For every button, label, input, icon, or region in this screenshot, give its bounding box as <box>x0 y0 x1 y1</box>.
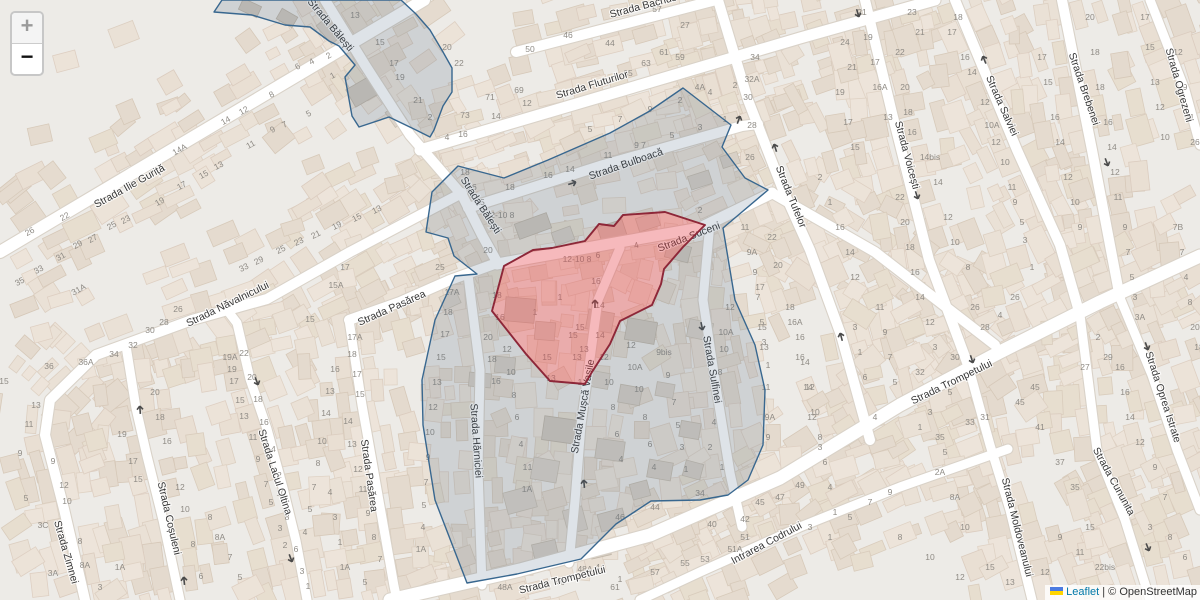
svg-text:9A: 9A <box>747 247 758 257</box>
svg-text:36: 36 <box>44 361 54 371</box>
svg-text:16A: 16A <box>787 317 802 327</box>
svg-text:7: 7 <box>888 352 893 362</box>
svg-text:20: 20 <box>1190 322 1200 332</box>
svg-text:9: 9 <box>1013 197 1018 207</box>
svg-text:15: 15 <box>1145 42 1155 52</box>
svg-text:11: 11 <box>25 419 34 429</box>
svg-text:20: 20 <box>900 217 910 227</box>
svg-text:61: 61 <box>659 47 669 57</box>
svg-text:15: 15 <box>305 314 315 324</box>
svg-text:8A: 8A <box>950 492 961 502</box>
svg-text:8: 8 <box>316 458 321 468</box>
svg-text:34: 34 <box>750 52 760 62</box>
svg-text:4: 4 <box>828 482 833 492</box>
svg-text:3: 3 <box>1133 292 1138 302</box>
svg-text:12: 12 <box>1110 167 1120 177</box>
svg-text:1: 1 <box>858 347 863 357</box>
svg-text:7: 7 <box>228 552 233 562</box>
svg-text:30: 30 <box>743 92 753 102</box>
svg-text:1: 1 <box>1030 262 1035 272</box>
svg-text:7: 7 <box>756 292 761 302</box>
svg-text:16: 16 <box>1120 387 1130 397</box>
svg-text:1: 1 <box>828 532 833 542</box>
svg-text:18: 18 <box>155 412 165 422</box>
svg-text:27: 27 <box>680 20 690 30</box>
svg-text:14: 14 <box>933 177 943 187</box>
svg-text:10: 10 <box>925 552 935 562</box>
svg-text:11: 11 <box>741 222 750 232</box>
svg-text:15A: 15A <box>328 280 343 290</box>
svg-text:19A: 19A <box>222 352 237 362</box>
svg-text:14: 14 <box>800 357 810 367</box>
svg-text:4: 4 <box>445 132 450 142</box>
svg-text:7: 7 <box>312 482 317 492</box>
svg-text:4: 4 <box>303 527 308 537</box>
svg-text:14: 14 <box>1125 412 1135 422</box>
svg-text:13: 13 <box>325 386 335 396</box>
svg-text:50: 50 <box>525 44 535 54</box>
svg-text:12: 12 <box>980 97 990 107</box>
svg-text:18: 18 <box>903 107 913 117</box>
svg-text:22: 22 <box>239 348 249 358</box>
svg-text:15: 15 <box>1085 522 1095 532</box>
svg-text:8A: 8A <box>80 560 91 570</box>
svg-text:5: 5 <box>1020 217 1025 227</box>
svg-text:24: 24 <box>840 37 850 47</box>
svg-text:5: 5 <box>760 317 765 327</box>
svg-text:33: 33 <box>965 417 975 427</box>
svg-text:45: 45 <box>1030 382 1040 392</box>
svg-text:3: 3 <box>933 342 938 352</box>
svg-text:5: 5 <box>1130 272 1135 282</box>
svg-text:13: 13 <box>347 439 357 449</box>
svg-text:17: 17 <box>947 27 957 37</box>
svg-text:18: 18 <box>1095 82 1105 92</box>
svg-text:12: 12 <box>955 572 965 582</box>
svg-text:21: 21 <box>847 62 857 72</box>
svg-text:12: 12 <box>175 482 185 492</box>
svg-text:28: 28 <box>980 322 990 332</box>
svg-text:15: 15 <box>985 562 995 572</box>
svg-text:29: 29 <box>1103 352 1113 362</box>
svg-text:12: 12 <box>991 137 1001 147</box>
svg-text:8: 8 <box>1168 532 1173 542</box>
svg-text:15: 15 <box>355 389 365 399</box>
svg-text:14bis: 14bis <box>920 152 940 162</box>
svg-text:16: 16 <box>330 364 340 374</box>
svg-text:1: 1 <box>828 197 833 207</box>
svg-text:28: 28 <box>159 317 169 327</box>
svg-text:55: 55 <box>680 558 690 568</box>
svg-text:8: 8 <box>966 262 971 272</box>
svg-text:32: 32 <box>915 367 925 377</box>
svg-text:16: 16 <box>1103 117 1113 127</box>
svg-text:30: 30 <box>145 325 155 335</box>
svg-text:7B: 7B <box>1173 222 1184 232</box>
svg-text:21: 21 <box>915 27 925 37</box>
svg-text:3C: 3C <box>38 520 49 530</box>
svg-text:9: 9 <box>1153 462 1158 472</box>
svg-text:8: 8 <box>1188 297 1193 307</box>
svg-text:14: 14 <box>915 292 925 302</box>
svg-text:17: 17 <box>1037 52 1047 62</box>
svg-text:10: 10 <box>1000 157 1010 167</box>
svg-text:26: 26 <box>173 304 183 314</box>
svg-text:20: 20 <box>1085 12 1095 22</box>
svg-text:17: 17 <box>755 282 765 292</box>
svg-text:6: 6 <box>1183 552 1188 562</box>
svg-text:15: 15 <box>133 474 143 484</box>
svg-text:59: 59 <box>675 52 685 62</box>
svg-text:2: 2 <box>733 80 738 90</box>
svg-text:9: 9 <box>51 456 56 466</box>
svg-text:2: 2 <box>818 172 823 182</box>
svg-text:13: 13 <box>883 112 893 122</box>
svg-text:10: 10 <box>1070 197 1080 207</box>
svg-text:18: 18 <box>253 394 263 404</box>
svg-text:7: 7 <box>1180 247 1185 257</box>
svg-text:16: 16 <box>835 222 845 232</box>
svg-text:73: 73 <box>460 110 470 120</box>
svg-text:18: 18 <box>785 302 795 312</box>
svg-text:37: 37 <box>1055 457 1065 467</box>
svg-text:22: 22 <box>454 58 464 68</box>
svg-text:31: 31 <box>980 412 990 422</box>
svg-text:26: 26 <box>1010 292 1020 302</box>
svg-text:6: 6 <box>199 571 204 581</box>
svg-text:17: 17 <box>870 57 880 67</box>
svg-text:10: 10 <box>810 407 820 417</box>
svg-text:4: 4 <box>1184 272 1189 282</box>
svg-text:7: 7 <box>868 497 873 507</box>
svg-text:3: 3 <box>808 522 813 532</box>
svg-text:17: 17 <box>128 456 138 466</box>
svg-text:7: 7 <box>618 114 623 124</box>
svg-text:10: 10 <box>317 436 327 446</box>
svg-text:2: 2 <box>283 540 288 550</box>
svg-text:18: 18 <box>905 242 915 252</box>
svg-text:3: 3 <box>853 322 858 332</box>
svg-text:11: 11 <box>876 302 885 312</box>
svg-text:5: 5 <box>943 447 948 457</box>
svg-text:14: 14 <box>967 67 977 77</box>
svg-text:12: 12 <box>59 480 69 490</box>
svg-text:8A: 8A <box>215 532 226 542</box>
svg-text:14: 14 <box>321 408 331 418</box>
svg-text:5: 5 <box>363 577 368 587</box>
svg-text:9: 9 <box>883 327 888 337</box>
svg-text:15: 15 <box>0 376 9 386</box>
svg-text:35: 35 <box>935 432 945 442</box>
svg-text:1: 1 <box>918 422 923 432</box>
svg-text:17: 17 <box>340 262 350 272</box>
svg-text:42: 42 <box>740 514 750 524</box>
svg-text:12: 12 <box>943 212 953 222</box>
svg-text:18: 18 <box>1090 47 1100 57</box>
svg-text:57: 57 <box>650 567 660 577</box>
svg-text:16: 16 <box>458 129 468 139</box>
svg-text:1: 1 <box>766 360 771 370</box>
svg-text:6: 6 <box>294 544 299 554</box>
svg-text:18: 18 <box>1194 342 1200 352</box>
svg-text:22: 22 <box>895 47 905 57</box>
svg-text:19: 19 <box>863 32 873 42</box>
svg-text:7: 7 <box>424 477 429 487</box>
svg-text:9: 9 <box>18 448 23 458</box>
svg-text:12: 12 <box>522 98 532 108</box>
svg-text:3: 3 <box>818 442 823 452</box>
svg-text:9: 9 <box>888 487 893 497</box>
svg-text:17: 17 <box>843 117 853 127</box>
svg-text:45: 45 <box>1015 397 1025 407</box>
svg-text:4: 4 <box>421 522 426 532</box>
svg-text:9A: 9A <box>765 412 776 422</box>
svg-text:8: 8 <box>208 512 213 522</box>
svg-text:20: 20 <box>900 82 910 92</box>
svg-text:45: 45 <box>755 497 765 507</box>
svg-text:32A: 32A <box>744 74 759 84</box>
svg-text:13: 13 <box>31 400 41 410</box>
svg-text:46: 46 <box>563 30 573 40</box>
svg-text:10: 10 <box>960 522 970 532</box>
svg-text:3: 3 <box>300 566 305 576</box>
svg-text:17: 17 <box>352 369 362 379</box>
svg-text:5: 5 <box>24 493 29 503</box>
svg-text:25: 25 <box>435 262 445 272</box>
svg-text:15: 15 <box>235 395 245 405</box>
svg-text:5: 5 <box>269 497 274 507</box>
svg-text:40: 40 <box>707 519 717 529</box>
svg-text:9: 9 <box>1123 222 1128 232</box>
svg-text:7: 7 <box>1126 247 1131 257</box>
svg-text:1A: 1A <box>340 562 351 572</box>
svg-text:34: 34 <box>109 349 119 359</box>
svg-text:17A: 17A <box>347 332 362 342</box>
svg-text:3: 3 <box>1148 522 1153 532</box>
svg-text:5: 5 <box>848 512 853 522</box>
svg-text:35: 35 <box>1070 482 1080 492</box>
svg-text:9: 9 <box>256 454 261 464</box>
svg-text:1: 1 <box>833 507 838 517</box>
svg-text:6: 6 <box>863 372 868 382</box>
svg-text:4A: 4A <box>695 82 706 92</box>
svg-text:12: 12 <box>805 382 815 392</box>
svg-text:3A: 3A <box>1135 312 1146 322</box>
svg-text:5: 5 <box>422 500 427 510</box>
svg-text:5: 5 <box>893 377 898 387</box>
svg-text:71: 71 <box>485 92 495 102</box>
svg-text:16: 16 <box>910 267 920 277</box>
svg-text:10: 10 <box>1160 132 1170 142</box>
svg-text:20: 20 <box>247 372 257 382</box>
svg-text:26: 26 <box>1190 137 1200 147</box>
svg-text:4: 4 <box>708 87 713 97</box>
svg-text:16: 16 <box>795 332 805 342</box>
svg-text:9: 9 <box>1078 222 1083 232</box>
svg-text:3: 3 <box>278 523 283 533</box>
svg-text:16: 16 <box>1050 112 1060 122</box>
svg-text:22: 22 <box>767 232 777 242</box>
svg-text:41: 41 <box>1035 422 1045 432</box>
svg-text:36A: 36A <box>78 357 93 367</box>
svg-text:3: 3 <box>928 407 933 417</box>
svg-text:3: 3 <box>762 337 767 347</box>
svg-text:32: 32 <box>128 340 138 350</box>
svg-text:12: 12 <box>850 272 860 282</box>
svg-text:13: 13 <box>1150 77 1160 87</box>
svg-text:2A: 2A <box>935 467 946 477</box>
svg-text:1A: 1A <box>115 562 126 572</box>
svg-text:12: 12 <box>925 317 935 327</box>
svg-text:18: 18 <box>953 12 963 22</box>
svg-text:6: 6 <box>823 457 828 467</box>
svg-text:4: 4 <box>998 310 1003 320</box>
svg-text:12: 12 <box>1063 172 1073 182</box>
svg-text:30: 30 <box>950 352 960 362</box>
svg-text:12: 12 <box>1155 102 1165 112</box>
svg-text:19: 19 <box>227 364 237 374</box>
svg-text:17: 17 <box>1140 12 1150 22</box>
svg-text:20: 20 <box>442 42 452 52</box>
svg-text:22: 22 <box>895 192 905 202</box>
svg-text:2: 2 <box>1096 332 1101 342</box>
svg-text:16: 16 <box>259 417 269 427</box>
svg-text:7: 7 <box>264 479 269 489</box>
svg-text:14: 14 <box>491 111 501 121</box>
svg-text:19: 19 <box>117 429 127 439</box>
svg-text:1: 1 <box>306 581 311 591</box>
svg-text:19: 19 <box>835 87 845 97</box>
svg-text:3: 3 <box>1023 235 1028 245</box>
svg-text:3: 3 <box>98 582 103 592</box>
svg-text:22bis: 22bis <box>1095 562 1115 572</box>
svg-text:5: 5 <box>588 124 593 134</box>
svg-text:48A: 48A <box>497 582 512 592</box>
svg-text:14: 14 <box>845 247 855 257</box>
svg-text:9: 9 <box>1058 532 1063 542</box>
svg-text:26: 26 <box>970 302 980 312</box>
svg-text:16: 16 <box>1115 362 1125 372</box>
svg-text:20: 20 <box>773 260 783 270</box>
svg-text:9: 9 <box>753 267 758 277</box>
svg-text:8: 8 <box>818 432 823 442</box>
svg-text:11: 11 <box>1076 547 1085 557</box>
svg-text:14: 14 <box>1107 142 1117 152</box>
svg-text:4: 4 <box>328 487 333 497</box>
svg-text:12: 12 <box>1135 437 1145 447</box>
svg-text:13: 13 <box>1005 577 1015 587</box>
svg-text:11: 11 <box>1114 192 1123 202</box>
svg-text:49: 49 <box>795 480 805 490</box>
svg-text:23: 23 <box>907 7 917 17</box>
svg-text:7: 7 <box>1163 492 1168 502</box>
svg-text:9: 9 <box>766 432 771 442</box>
svg-text:20: 20 <box>150 387 160 397</box>
svg-text:11: 11 <box>1008 182 1017 192</box>
svg-text:15: 15 <box>1043 77 1053 87</box>
svg-text:44: 44 <box>650 502 660 512</box>
svg-text:44: 44 <box>605 38 615 48</box>
svg-text:53: 53 <box>700 554 710 564</box>
svg-text:1: 1 <box>338 537 343 547</box>
svg-text:26: 26 <box>745 152 755 162</box>
svg-text:3: 3 <box>333 512 338 522</box>
svg-text:51: 51 <box>740 532 750 542</box>
svg-text:7: 7 <box>378 554 383 564</box>
svg-text:14: 14 <box>343 416 353 426</box>
svg-text:16: 16 <box>162 436 172 446</box>
svg-text:8: 8 <box>898 532 903 542</box>
svg-text:13: 13 <box>239 411 249 421</box>
svg-text:18: 18 <box>347 349 357 359</box>
svg-text:17: 17 <box>229 376 239 386</box>
svg-text:15: 15 <box>850 142 860 152</box>
svg-text:63: 63 <box>641 58 651 68</box>
svg-text:8: 8 <box>191 539 196 549</box>
svg-text:10: 10 <box>62 496 72 506</box>
svg-text:14: 14 <box>1055 137 1065 147</box>
svg-text:16A: 16A <box>872 82 887 92</box>
svg-text:47: 47 <box>775 492 785 502</box>
svg-text:8: 8 <box>372 532 377 542</box>
svg-text:12: 12 <box>1040 567 1050 577</box>
svg-text:4: 4 <box>873 412 878 422</box>
svg-text:28: 28 <box>747 120 757 130</box>
svg-text:16: 16 <box>960 52 970 62</box>
svg-text:8: 8 <box>78 536 83 546</box>
svg-text:10: 10 <box>950 237 960 247</box>
svg-text:61: 61 <box>610 582 620 592</box>
svg-text:69: 69 <box>514 85 524 95</box>
svg-text:27: 27 <box>1080 362 1090 372</box>
svg-text:5: 5 <box>308 504 313 514</box>
svg-text:3A: 3A <box>48 568 59 578</box>
svg-text:10: 10 <box>180 504 190 514</box>
svg-text:5: 5 <box>238 572 243 582</box>
svg-text:1A: 1A <box>416 544 427 554</box>
svg-text:10A: 10A <box>984 120 999 130</box>
